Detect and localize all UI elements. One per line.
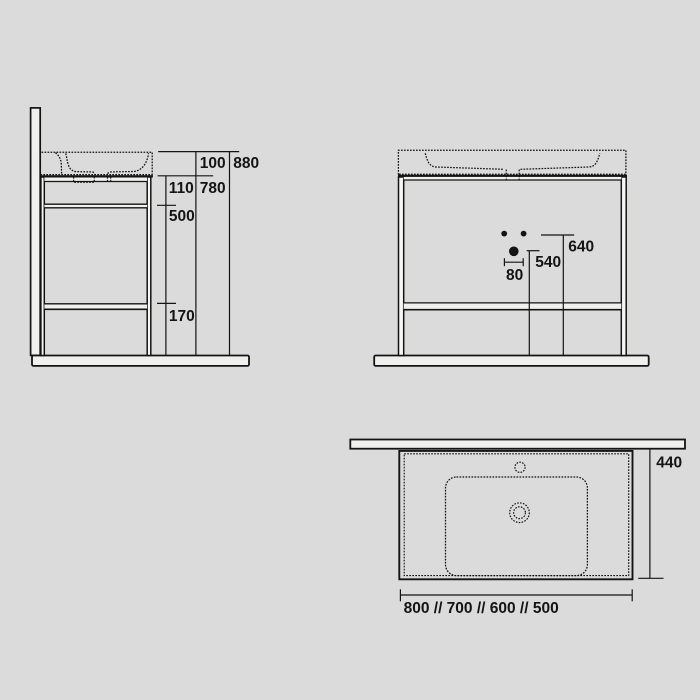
svg-text:640: 640 [568, 238, 594, 255]
svg-text:540: 540 [535, 254, 561, 271]
svg-text:170: 170 [169, 308, 195, 325]
svg-text:110: 110 [169, 180, 194, 197]
svg-text:80: 80 [506, 267, 523, 284]
svg-text:780: 780 [200, 180, 226, 197]
svg-text:880: 880 [233, 155, 259, 172]
svg-text:100: 100 [200, 155, 226, 172]
svg-text:440: 440 [656, 454, 682, 471]
svg-text:800 // 700 // 600 // 500: 800 // 700 // 600 // 500 [404, 600, 559, 617]
svg-text:500: 500 [169, 208, 195, 225]
